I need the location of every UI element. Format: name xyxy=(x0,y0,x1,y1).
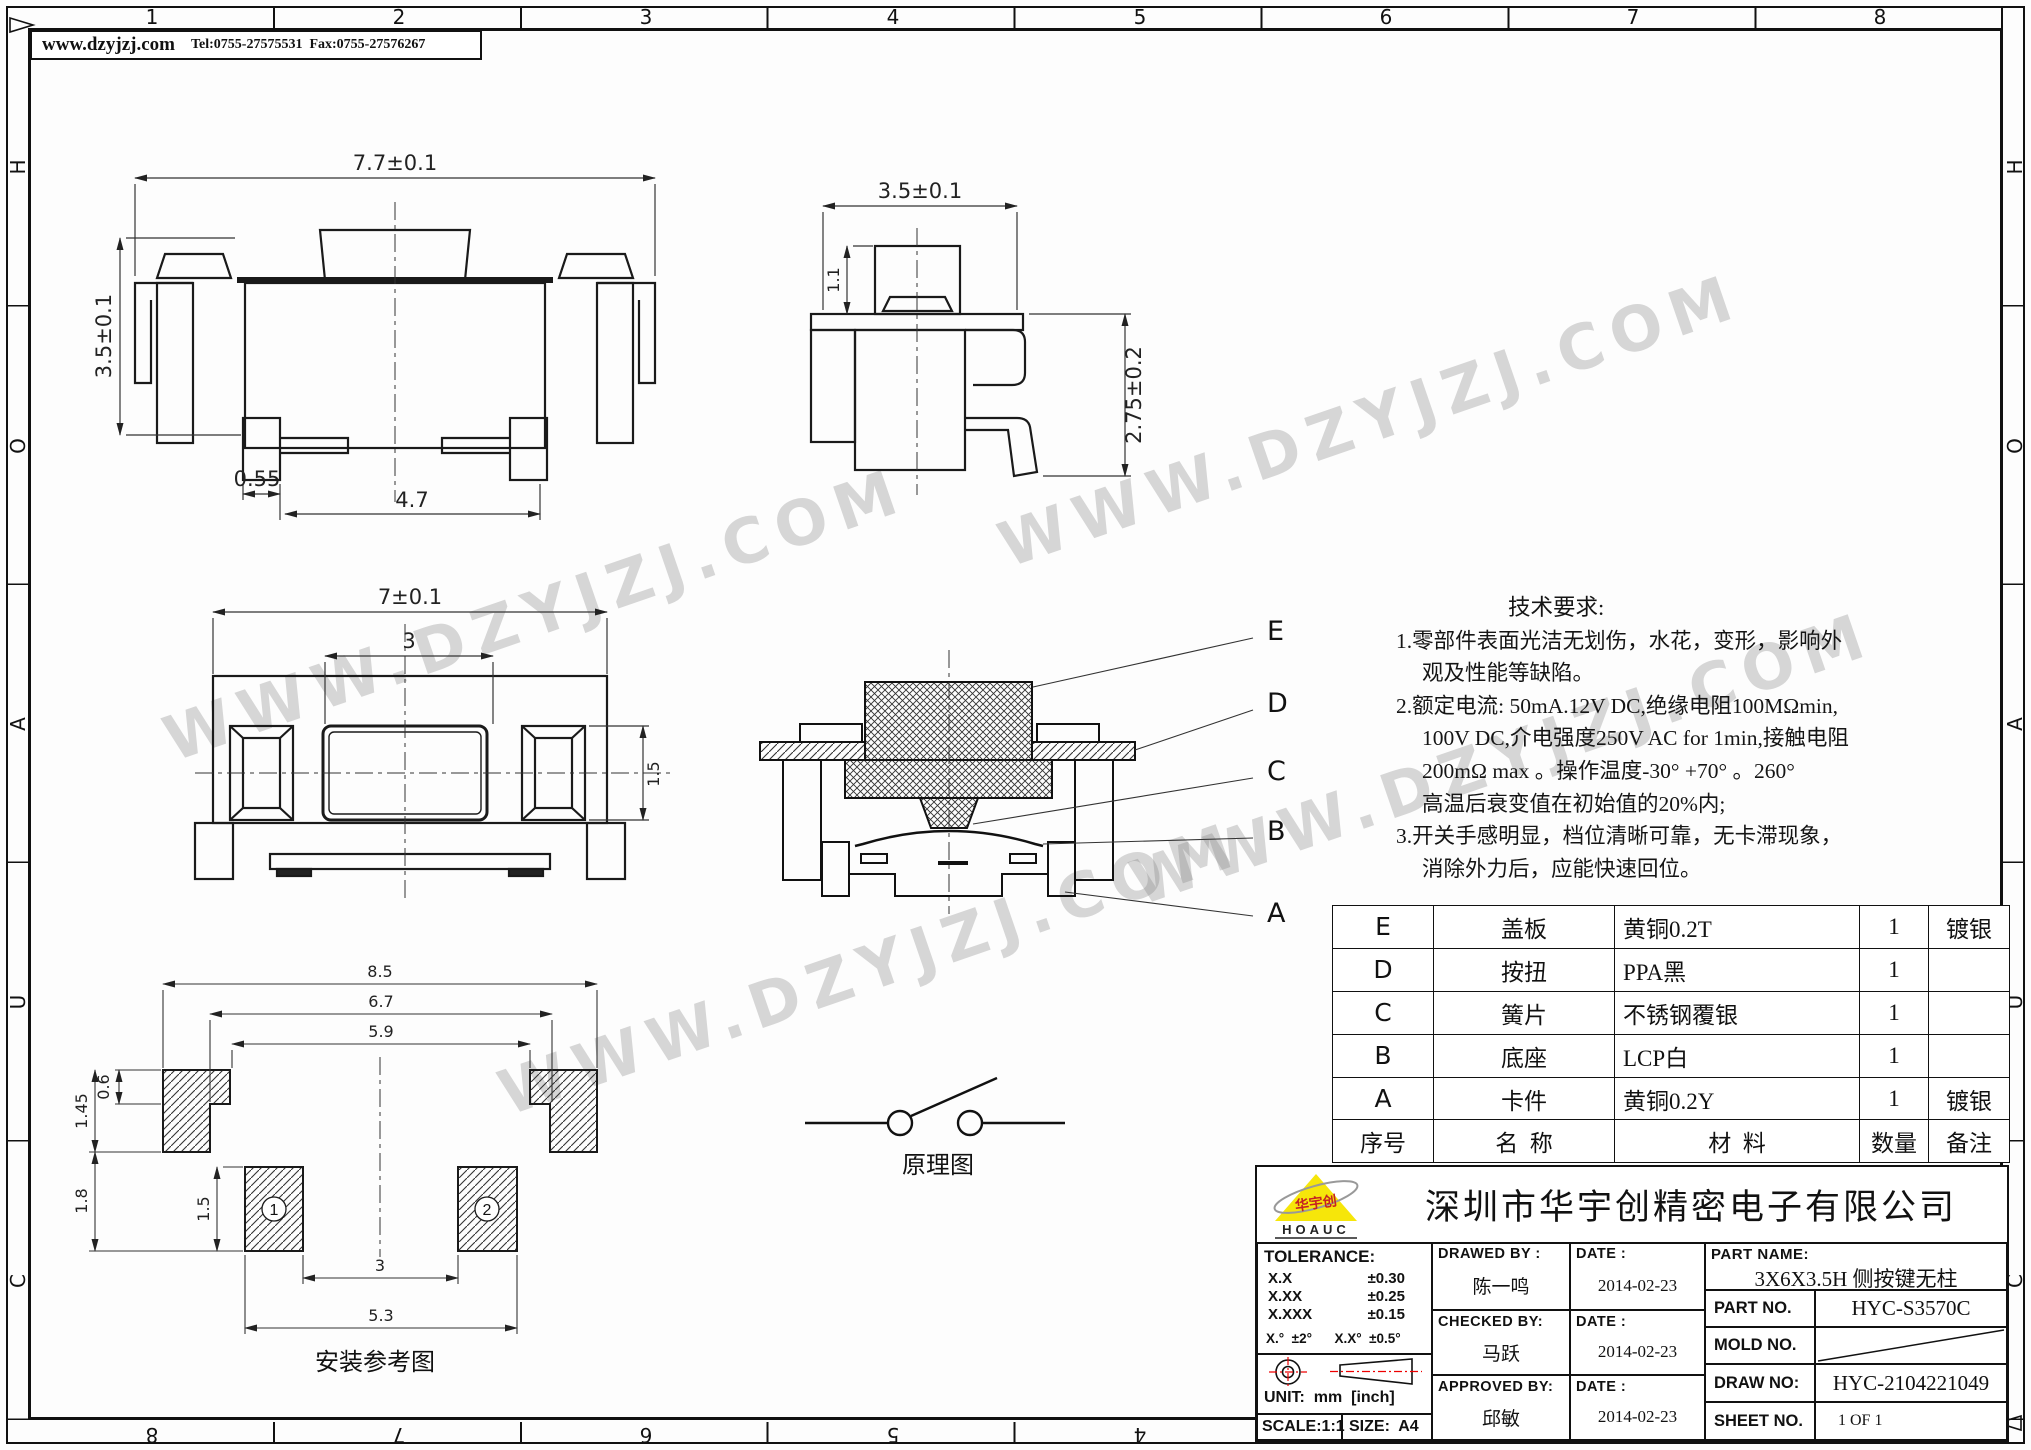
bom-table: E 盖板 黄铜0.2T 1 镀银 D 按扭 PPA黑 1 C 簧片 不锈钢覆银 … xyxy=(1332,905,2010,1163)
bom-id: C xyxy=(1333,991,1434,1034)
zone-left-1: H xyxy=(7,156,29,178)
bom-qty: 1 xyxy=(1860,1034,1929,1077)
bom-qty: 1 xyxy=(1860,991,1929,1034)
company-logo: 华宇创 HOAUC xyxy=(1257,1170,1375,1240)
bom-name: 按扭 xyxy=(1434,948,1615,991)
dim-side-height: 2.75±0.2 xyxy=(1122,346,1146,444)
top-view-outline xyxy=(195,676,625,879)
table-header-row: 序号 名 称 材 料 数量 备注 xyxy=(1333,1120,2010,1163)
zone-left-4: U xyxy=(7,991,29,1013)
part-name-value: 3X6X3.5H 侧按键无柱 xyxy=(1706,1263,2006,1293)
dim-install-mid: 6.7 xyxy=(368,992,393,1011)
bom-material: 黄铜0.2Y xyxy=(1615,1077,1860,1120)
blank-diagonal-icon xyxy=(1816,1328,2006,1363)
bom-name: 卡件 xyxy=(1434,1077,1615,1120)
sheet-no-label: SHEET NO. xyxy=(1705,1402,1815,1440)
date-label: DATE : xyxy=(1571,1376,1704,1395)
dim-top-button: 3 xyxy=(402,629,415,653)
zone-top-8: 8 xyxy=(1860,6,1900,28)
company-row: 华宇创 HOAUC 深圳市华宇创精密电子有限公司 xyxy=(1257,1167,2007,1244)
bom-note xyxy=(1929,991,2010,1034)
dim-install-lower: 1.8 xyxy=(75,1188,91,1213)
company-name: 深圳市华宇创精密电子有限公司 xyxy=(1375,1179,2007,1230)
draw-no-label: DRAW NO: xyxy=(1705,1364,1815,1402)
zone-right-1: H xyxy=(2004,156,2026,178)
part-label-e: E xyxy=(1267,616,1284,647)
header-website: www.dzyjzj.com xyxy=(42,34,175,56)
zone-top-1: 1 xyxy=(132,6,172,28)
part-label-c: C xyxy=(1267,756,1286,787)
bom-id: B xyxy=(1333,1034,1434,1077)
dim-install-pad-total: 1.45 xyxy=(75,1093,91,1129)
zone-bottom-3: 6 xyxy=(626,1424,666,1446)
side-view-outline xyxy=(811,246,1037,476)
part-no-label: PART NO. xyxy=(1705,1290,1815,1327)
zone-bottom-2: 7 xyxy=(379,1424,419,1446)
checked-by-name: 马跃 xyxy=(1433,1330,1569,1374)
checked-by-label: CHECKED BY: xyxy=(1433,1311,1569,1330)
projection-symbols xyxy=(1257,1354,1432,1389)
mold-no-label: MOLD NO. xyxy=(1705,1327,1815,1364)
dim-side-button: 1.1 xyxy=(824,267,843,292)
tol-label: X.XX xyxy=(1268,1288,1302,1305)
tol-label: X.XXX xyxy=(1268,1306,1312,1323)
tech-title: 技术要求: xyxy=(1508,592,1992,625)
tech-line: 消除外力后，应能快速回位。 xyxy=(1396,853,1992,886)
pad-number-1: 1 xyxy=(270,1202,279,1219)
tolerance-row: X.XX±0.25 xyxy=(1258,1287,1431,1305)
title-block: 华宇创 HOAUC 深圳市华宇创精密电子有限公司 TOLERANCE: X.X±… xyxy=(1255,1165,2009,1442)
bom-material: 黄铜0.2T xyxy=(1615,906,1860,949)
projection-symbol-icon xyxy=(1262,1356,1427,1388)
bom-id: E xyxy=(1333,906,1434,949)
part-name-label: PART NAME: xyxy=(1706,1243,2006,1263)
sheet-header: www.dzyjzj.com Tel:0755-27575531 Fax:075… xyxy=(30,30,482,60)
dim-side-width: 3.5±0.1 xyxy=(878,180,962,203)
zone-top-4: 4 xyxy=(873,6,913,28)
tol-label: X.X xyxy=(1268,1270,1292,1287)
tolerance-row: X.XXX±0.15 xyxy=(1258,1305,1431,1323)
dim-front-width: 7.7±0.1 xyxy=(353,151,437,175)
bom-note xyxy=(1929,948,2010,991)
tech-line: 200mΩ max 。操作温度-30° +70° 。260° xyxy=(1396,755,1992,788)
part-no-value: HYC-S3570C xyxy=(1815,1290,2007,1327)
bom-id: A xyxy=(1333,1077,1434,1120)
zone-top-6: 6 xyxy=(1366,6,1406,28)
date-label: DATE : xyxy=(1571,1243,1704,1262)
zone-bottom-4: 5 xyxy=(873,1424,913,1446)
approved-by-name: 邱敏 xyxy=(1433,1395,1569,1439)
approved-by-label: APPROVED BY: xyxy=(1433,1376,1569,1395)
bom-header-note: 备注 xyxy=(1929,1120,2010,1163)
tech-line: 观及性能等缺陷。 xyxy=(1396,657,1992,690)
switch-symbol xyxy=(805,1078,1065,1135)
zone-left-5: C xyxy=(7,1270,29,1292)
zone-right-2: O xyxy=(2004,435,2026,457)
dim-install-pad-h: 1.5 xyxy=(194,1196,213,1221)
sheet-no-value: 1 OF 1 xyxy=(1815,1402,2007,1440)
drawed-by-label: DRAWED BY : xyxy=(1433,1243,1569,1262)
part-label-b: B xyxy=(1267,816,1286,847)
dim-install-inner: 5.9 xyxy=(368,1022,393,1041)
dim-front-height: 3.5±0.1 xyxy=(95,294,116,378)
tol-value: ±0.25 xyxy=(1368,1288,1405,1305)
date-cell: DATE : 2014-02-23 xyxy=(1570,1310,1705,1375)
bom-name: 盖板 xyxy=(1434,906,1615,949)
section-view-drawing: E D C B A xyxy=(745,592,1305,932)
tolerance-angles: X.° ±2° X.X° ±0.5° xyxy=(1258,1323,1431,1346)
header-contact: Tel:0755-27575531 Fax:0755-27576267 xyxy=(191,37,425,53)
tol-value: ±0.15 xyxy=(1368,1306,1405,1323)
section-outline xyxy=(760,682,1135,896)
part-label-a: A xyxy=(1267,898,1286,929)
top-view-drawing: 7±0.1 3 1.5 xyxy=(175,588,685,918)
bom-header-id: 序号 xyxy=(1333,1120,1434,1163)
table-row: B 底座 LCP白 1 xyxy=(1333,1034,2010,1077)
tech-line: 高温后衰变值在初始值的20%内; xyxy=(1396,788,1992,821)
date-cell: DATE : 2014-02-23 xyxy=(1570,1375,1705,1440)
bom-header-qty: 数量 xyxy=(1860,1120,1929,1163)
tech-line: 2.额定电流: 50mA.12V DC,绝缘电阻100MΩmin, xyxy=(1396,690,1992,723)
dim-install-overall: 8.5 xyxy=(367,962,392,981)
zone-left-3: A xyxy=(7,713,29,735)
date-value: 2014-02-23 xyxy=(1571,1330,1704,1374)
dim-top-slot: 1.5 xyxy=(644,761,663,786)
zone-ticks-top xyxy=(28,6,2003,28)
table-row: C 簧片 不锈钢覆银 1 xyxy=(1333,991,2010,1034)
tech-line: 3.开关手感明显，档位清晰可靠，无卡滞现象， xyxy=(1396,820,1992,853)
zone-bottom-5: 4 xyxy=(1120,1424,1160,1446)
logo-brand: HOAUC xyxy=(1282,1222,1350,1237)
zone-bottom-1: 8 xyxy=(132,1424,172,1446)
install-dimension-lines xyxy=(89,984,597,1334)
installation-view-drawing: 1 2 8.5 6.7 5.9 0.6 1.45 1.8 xyxy=(75,962,645,1402)
table-row: D 按扭 PPA黑 1 xyxy=(1333,948,2010,991)
technical-requirements: 技术要求: 1.零部件表面光洁无划伤，水花，变形，影响外 观及性能等缺陷。 2.… xyxy=(1396,592,1992,885)
bom-material: PPA黑 xyxy=(1615,948,1860,991)
table-row: E 盖板 黄铜0.2T 1 镀银 xyxy=(1333,906,2010,949)
dim-install-span: 5.3 xyxy=(368,1306,393,1325)
size-cell: SIZE: A4 xyxy=(1342,1414,1432,1440)
side-view-dimension-lines xyxy=(823,206,1131,476)
date-cell: DATE : 2014-02-23 xyxy=(1570,1242,1705,1310)
table-row: A 卡件 黄铜0.2Y 1 镀银 xyxy=(1333,1077,2010,1120)
zone-right-3: A xyxy=(2004,713,2026,735)
drawed-by-name: 陈一鸣 xyxy=(1433,1262,1569,1309)
installation-caption: 安装参考图 xyxy=(315,1349,435,1376)
checked-by-cell: CHECKED BY: 马跃 xyxy=(1432,1310,1570,1375)
tech-line: 1.零部件表面光洁无划伤，水花，变形，影响外 xyxy=(1396,625,1992,658)
date-value: 2014-02-23 xyxy=(1571,1262,1704,1309)
zone-top-3: 3 xyxy=(626,6,666,28)
dim-front-span: 4.7 xyxy=(395,488,428,512)
dim-top-width: 7±0.1 xyxy=(378,588,442,609)
side-view-drawing: 3.5±0.1 1.1 2.75±0.2 xyxy=(795,180,1185,505)
scale-cell: SCALE:1:1 xyxy=(1257,1414,1342,1440)
bom-note xyxy=(1929,1034,2010,1077)
tol-value: ±0.30 xyxy=(1368,1270,1405,1287)
zone-top-5: 5 xyxy=(1120,6,1160,28)
dim-install-top-pad: 0.6 xyxy=(94,1074,113,1099)
bom-note: 镀银 xyxy=(1929,906,2010,949)
tech-line: 100V DC,介电强度250V AC for 1min,接触电阻 xyxy=(1396,722,1992,755)
dim-install-gap: 3 xyxy=(375,1256,385,1275)
part-name-cell: PART NAME: 3X6X3.5H 侧按键无柱 xyxy=(1705,1242,2007,1290)
front-view-drawing: 7.7±0.1 3.5±0.1 0.55 4.7 xyxy=(95,150,695,530)
schematic-caption: 原理图 xyxy=(902,1152,974,1179)
tolerance-label: TOLERANCE: xyxy=(1258,1243,1431,1269)
zone-left-2: O xyxy=(7,435,29,457)
bom-id: D xyxy=(1333,948,1434,991)
top-view-dimension-lines xyxy=(213,612,649,820)
draw-no-value: HYC-2104221049 xyxy=(1815,1364,2007,1402)
date-label: DATE : xyxy=(1571,1311,1704,1330)
unit-cell: UNIT: mm [inch] xyxy=(1257,1389,1432,1414)
tolerance-row: X.X±0.30 xyxy=(1258,1269,1431,1287)
bom-name: 簧片 xyxy=(1434,991,1615,1034)
dim-front-foot: 0.55 xyxy=(234,467,281,491)
zone-top-2: 2 xyxy=(379,6,419,28)
bom-material: LCP白 xyxy=(1615,1034,1860,1077)
mold-no-value-blank xyxy=(1815,1327,2007,1364)
engineering-drawing-sheet: 1 2 3 4 5 6 7 8 8 7 6 5 4 3 2 1 H O A U … xyxy=(0,0,2031,1450)
part-label-d: D xyxy=(1267,688,1288,719)
bom-name: 底座 xyxy=(1434,1034,1615,1077)
hoauc-logo-icon: 华宇创 HOAUC xyxy=(1261,1170,1371,1240)
tolerance-block: TOLERANCE: X.X±0.30 X.XX±0.25 X.XXX±0.15… xyxy=(1257,1242,1432,1354)
bom-material: 不锈钢覆银 xyxy=(1615,991,1860,1034)
pad-number-2: 2 xyxy=(483,1202,492,1219)
bom-header-name: 名 称 xyxy=(1434,1120,1615,1163)
bom-header-material: 材 料 xyxy=(1615,1120,1860,1163)
bom-qty: 1 xyxy=(1860,948,1929,991)
date-value: 2014-02-23 xyxy=(1571,1395,1704,1439)
bom-qty: 1 xyxy=(1860,1077,1929,1120)
bom-qty: 1 xyxy=(1860,906,1929,949)
drawed-by-cell: DRAWED BY : 陈一鸣 xyxy=(1432,1242,1570,1310)
approved-by-cell: APPROVED BY: 邱敏 xyxy=(1432,1375,1570,1440)
schematic-drawing: 原理图 xyxy=(790,1075,1080,1190)
bom-note: 镀银 xyxy=(1929,1077,2010,1120)
zone-top-7: 7 xyxy=(1613,6,1653,28)
